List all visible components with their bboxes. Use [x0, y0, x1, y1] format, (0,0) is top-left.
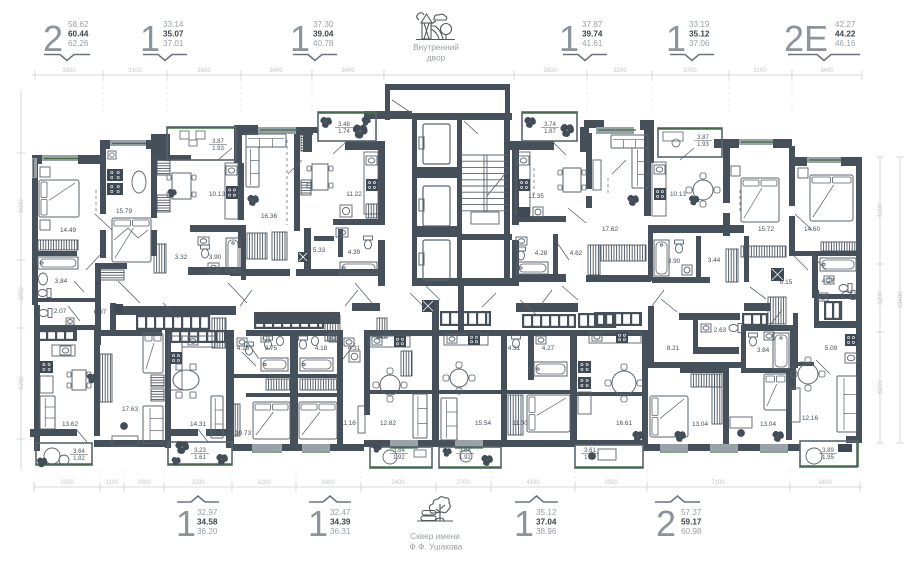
svg-text:3.84: 3.84 — [757, 347, 770, 354]
svg-text:4100: 4100 — [526, 480, 540, 486]
svg-text:3200: 3200 — [613, 68, 627, 74]
svg-text:13.04: 13.04 — [760, 421, 776, 428]
svg-text:2.63: 2.63 — [714, 327, 727, 334]
svg-text:37.30: 37.30 — [313, 20, 334, 29]
svg-text:3400: 3400 — [818, 480, 832, 486]
svg-text:6.15: 6.15 — [780, 279, 793, 286]
svg-text:10.13: 10.13 — [209, 191, 225, 198]
svg-text:5000: 5000 — [19, 199, 25, 213]
svg-text:38.96: 38.96 — [536, 527, 557, 536]
svg-text:32.47: 32.47 — [330, 508, 351, 517]
svg-text:34.58: 34.58 — [197, 518, 218, 527]
svg-text:3400: 3400 — [269, 68, 283, 74]
svg-text:11.35: 11.35 — [528, 193, 544, 200]
svg-text:4.27: 4.27 — [542, 345, 555, 352]
svg-text:3100: 3100 — [128, 68, 142, 74]
svg-text:58.62: 58.62 — [68, 20, 89, 29]
svg-text:11.22: 11.22 — [346, 191, 362, 198]
svg-text:6.97: 6.97 — [94, 309, 107, 316]
svg-text:2700: 2700 — [456, 480, 470, 486]
svg-text:39.04: 39.04 — [313, 30, 334, 39]
svg-text:33.14: 33.14 — [163, 20, 184, 29]
svg-text:10.73: 10.73 — [235, 430, 251, 437]
svg-text:3200: 3200 — [191, 480, 205, 486]
svg-text:4.18: 4.18 — [237, 345, 250, 352]
svg-text:1.92: 1.92 — [393, 455, 405, 461]
svg-text:44.22: 44.22 — [835, 30, 856, 39]
svg-text:1: 1 — [514, 503, 534, 544]
svg-text:3400: 3400 — [341, 68, 355, 74]
svg-text:15.72: 15.72 — [758, 226, 774, 233]
svg-text:4.39: 4.39 — [348, 249, 361, 256]
svg-text:60.44: 60.44 — [68, 30, 89, 39]
svg-text:2Е: 2Е — [784, 18, 828, 59]
svg-text:4.28: 4.28 — [535, 250, 548, 257]
svg-text:57.37: 57.37 — [681, 508, 702, 517]
svg-text:3200: 3200 — [19, 287, 25, 301]
svg-text:3.87: 3.87 — [697, 135, 709, 141]
svg-text:3400: 3400 — [321, 480, 335, 486]
svg-text:8.21: 8.21 — [667, 345, 680, 352]
svg-text:1: 1 — [290, 18, 310, 59]
svg-text:16.61: 16.61 — [616, 420, 632, 427]
svg-text:3.84: 3.84 — [459, 448, 471, 454]
svg-text:3300: 3300 — [62, 68, 76, 74]
svg-text:3.87: 3.87 — [212, 139, 224, 145]
svg-text:1.61: 1.61 — [194, 455, 206, 461]
svg-text:1.74: 1.74 — [338, 129, 350, 135]
svg-text:3.90: 3.90 — [209, 254, 222, 261]
svg-text:3300: 3300 — [60, 480, 74, 486]
svg-text:4.62: 4.62 — [570, 250, 583, 257]
svg-text:1.95: 1.95 — [822, 455, 834, 461]
svg-text:14.60: 14.60 — [804, 226, 820, 233]
svg-text:3.90: 3.90 — [668, 258, 681, 265]
svg-text:2: 2 — [43, 18, 63, 59]
svg-text:59.17: 59.17 — [681, 518, 702, 527]
svg-text:3.89: 3.89 — [822, 448, 834, 454]
svg-text:Внутренний: Внутренний — [413, 42, 459, 52]
svg-text:35.12: 35.12 — [536, 508, 557, 517]
svg-text:33.19: 33.19 — [689, 20, 710, 29]
svg-text:3.84: 3.84 — [55, 278, 68, 285]
svg-text:1.93: 1.93 — [697, 142, 709, 148]
svg-text:4.18: 4.18 — [315, 345, 328, 352]
svg-text:3200: 3200 — [257, 480, 271, 486]
svg-text:37.87: 37.87 — [582, 20, 603, 29]
svg-text:Сквер имени: Сквер имени — [410, 531, 460, 541]
svg-text:13.04: 13.04 — [692, 421, 708, 428]
svg-text:10.13: 10.13 — [670, 191, 686, 198]
svg-text:16.36: 16.36 — [261, 213, 277, 220]
svg-text:12.82: 12.82 — [380, 420, 396, 427]
svg-text:1.82: 1.82 — [73, 456, 85, 462]
svg-text:60.98: 60.98 — [681, 527, 702, 536]
svg-text:4.31: 4.31 — [508, 345, 521, 352]
svg-text:2.07: 2.07 — [54, 308, 67, 315]
svg-text:11.00: 11.00 — [512, 420, 528, 427]
svg-text:35.12: 35.12 — [689, 30, 710, 39]
svg-text:5.33: 5.33 — [313, 247, 326, 254]
svg-text:1: 1 — [140, 18, 160, 59]
svg-text:34.39: 34.39 — [330, 518, 351, 527]
svg-text:Ф.Ф. Ушакова: Ф.Ф. Ушакова — [410, 542, 463, 552]
svg-text:1: 1 — [666, 18, 686, 59]
svg-text:3.32: 3.32 — [175, 254, 188, 261]
svg-text:3400: 3400 — [820, 68, 834, 74]
svg-text:37.01: 37.01 — [163, 39, 184, 48]
svg-text:40.78: 40.78 — [313, 39, 334, 48]
svg-text:17.63: 17.63 — [122, 406, 138, 413]
svg-text:32.97: 32.97 — [197, 508, 218, 517]
svg-text:42.27: 42.27 — [835, 20, 856, 29]
svg-text:36.20: 36.20 — [197, 527, 218, 536]
svg-text:3.64: 3.64 — [73, 449, 85, 455]
svg-text:5000: 5000 — [878, 203, 884, 217]
svg-text:46.16: 46.16 — [835, 39, 856, 48]
svg-text:1: 1 — [308, 503, 328, 544]
svg-text:3400: 3400 — [391, 480, 405, 486]
svg-text:3800: 3800 — [197, 68, 211, 74]
svg-text:13400: 13400 — [898, 291, 904, 308]
svg-text:37.04: 37.04 — [536, 518, 557, 527]
svg-text:14.31: 14.31 — [190, 421, 206, 428]
svg-text:3.44: 3.44 — [708, 257, 721, 264]
svg-text:41.61: 41.61 — [582, 39, 603, 48]
svg-text:11.16: 11.16 — [340, 420, 356, 427]
svg-text:1.92: 1.92 — [459, 455, 471, 461]
svg-text:7100: 7100 — [711, 480, 725, 486]
svg-text:13.62: 13.62 — [62, 421, 78, 428]
svg-text:3.48: 3.48 — [338, 122, 350, 128]
svg-text:5200: 5200 — [19, 376, 25, 390]
svg-text:4.27: 4.27 — [822, 278, 835, 285]
svg-text:5.09: 5.09 — [825, 345, 838, 352]
svg-text:3.75: 3.75 — [265, 345, 278, 352]
svg-text:1100: 1100 — [106, 480, 120, 486]
svg-text:37.06: 37.06 — [689, 39, 710, 48]
svg-text:3600: 3600 — [543, 68, 557, 74]
svg-text:17.62: 17.62 — [602, 226, 618, 233]
svg-text:12.16: 12.16 — [802, 415, 818, 422]
svg-text:1.80: 1.80 — [584, 455, 596, 461]
svg-text:36.31: 36.31 — [330, 527, 351, 536]
svg-text:3.74: 3.74 — [544, 122, 556, 128]
svg-text:1.93: 1.93 — [212, 146, 224, 152]
svg-text:15.79: 15.79 — [116, 208, 132, 215]
svg-text:14.49: 14.49 — [60, 227, 76, 234]
svg-text:4.31: 4.31 — [348, 345, 361, 352]
svg-text:3.84: 3.84 — [393, 448, 405, 454]
svg-text:3.23: 3.23 — [194, 448, 206, 454]
svg-text:1: 1 — [176, 503, 196, 544]
svg-text:3500: 3500 — [604, 480, 618, 486]
svg-text:1.87: 1.87 — [544, 129, 556, 135]
svg-text:5200: 5200 — [878, 380, 884, 394]
svg-text:15.54: 15.54 — [475, 420, 491, 427]
svg-text:1: 1 — [559, 18, 579, 59]
svg-text:62.26: 62.26 — [68, 39, 89, 48]
svg-text:3100: 3100 — [753, 68, 767, 74]
svg-text:3200: 3200 — [878, 291, 884, 305]
svg-text:2: 2 — [656, 503, 676, 544]
svg-text:39.74: 39.74 — [582, 30, 603, 39]
svg-text:35.07: 35.07 — [163, 30, 184, 39]
svg-text:3.61: 3.61 — [584, 448, 596, 454]
svg-text:двор: двор — [427, 53, 446, 63]
svg-text:2000: 2000 — [137, 480, 151, 486]
svg-text:3700: 3700 — [683, 68, 697, 74]
